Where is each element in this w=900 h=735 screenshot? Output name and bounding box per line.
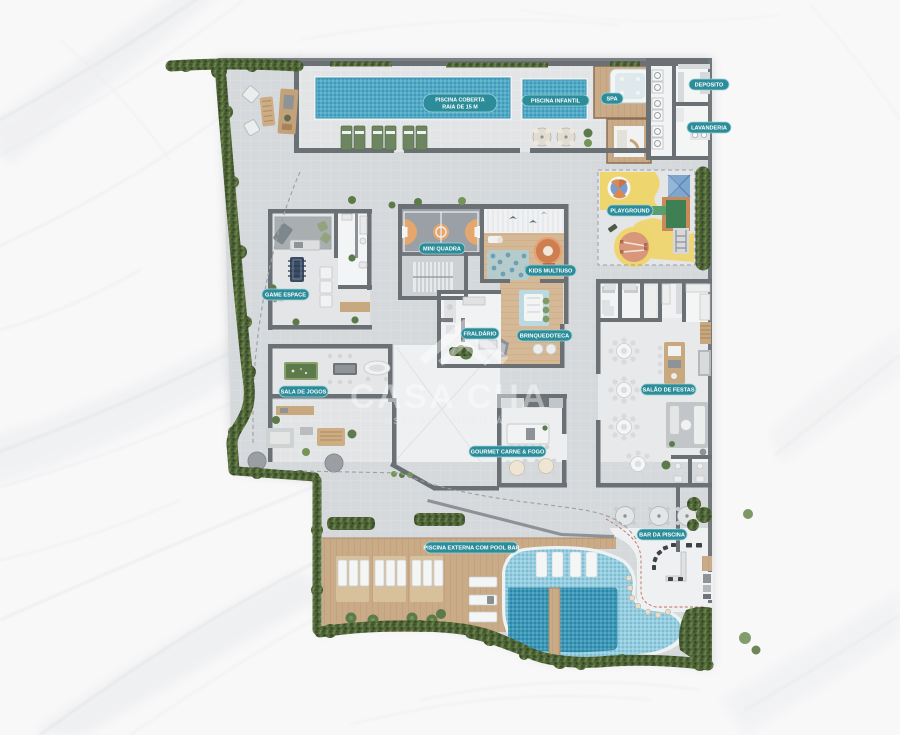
svg-text:CASA CHA: CASA CHA	[350, 378, 548, 416]
svg-text:NSAÇÕES IMOBILIÁ: NSAÇÕES IMOBILIÁ	[385, 416, 505, 426]
svg-text:KIDS MULTIUSO: KIDS MULTIUSO	[529, 269, 573, 275]
svg-text:BAR DA PISCINA: BAR DA PISCINA	[639, 533, 685, 539]
svg-text:MINI QUADRA: MINI QUADRA	[423, 247, 461, 253]
svg-text:SPA: SPA	[606, 97, 617, 103]
svg-text:FRALDÁRIO: FRALDÁRIO	[464, 331, 498, 338]
svg-text:GAME ESPACE: GAME ESPACE	[265, 293, 306, 299]
svg-text:PISCINA INFANTIL: PISCINA INFANTIL	[531, 99, 581, 105]
svg-text:PISCINA EXTERNA COM POOL BAR: PISCINA EXTERNA COM POOL BAR	[423, 546, 519, 552]
svg-text:GOURMET CARNE & FOGO: GOURMET CARNE & FOGO	[471, 450, 545, 456]
svg-text:SALÃO DE FESTAS: SALÃO DE FESTAS	[642, 387, 694, 394]
svg-text:RAIA DE 15 M: RAIA DE 15 M	[442, 105, 478, 111]
svg-text:PLAYGROUND: PLAYGROUND	[610, 209, 649, 215]
svg-text:BRINQUEDOTECA: BRINQUEDOTECA	[520, 334, 569, 340]
svg-text:DEPOSITO: DEPOSITO	[695, 83, 724, 89]
svg-text:LAVANDERIA: LAVANDERIA	[691, 126, 727, 132]
svg-text:PISCINA COBERTA: PISCINA COBERTA	[435, 98, 485, 104]
svg-text:SALA DE JOGOS: SALA DE JOGOS	[281, 390, 327, 396]
